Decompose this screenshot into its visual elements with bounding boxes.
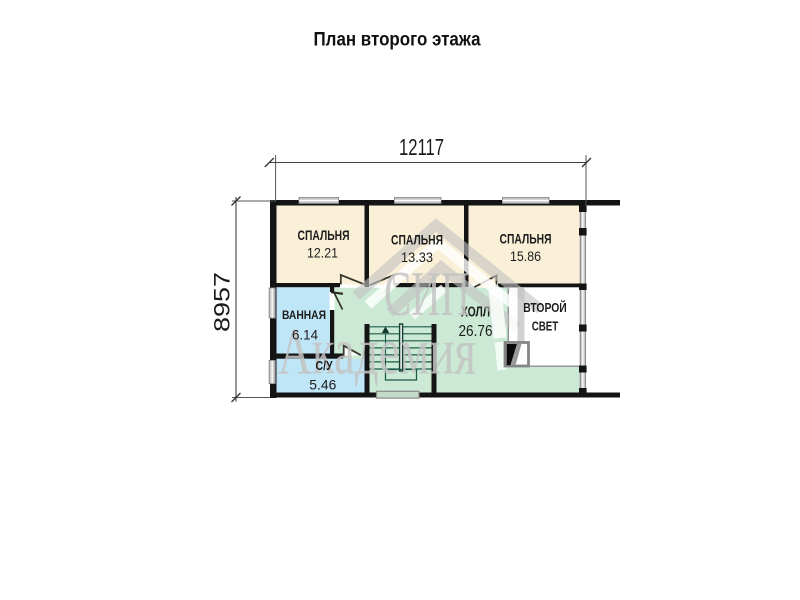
svg-text:5.46: 5.46 <box>309 377 336 393</box>
svg-text:15.86: 15.86 <box>510 248 541 264</box>
svg-text:12.21: 12.21 <box>307 245 338 261</box>
svg-text:СПАЛЬНЯ: СПАЛЬНЯ <box>391 232 443 248</box>
svg-text:СВЕТ: СВЕТ <box>532 319 559 334</box>
svg-text:ВТОРОЙ: ВТОРОЙ <box>523 300 567 315</box>
svg-text:ВАННАЯ: ВАННАЯ <box>282 310 326 322</box>
svg-text:6.14: 6.14 <box>292 327 318 343</box>
svg-text:С/У: С/У <box>316 358 334 373</box>
svg-text:8957: 8957 <box>210 272 235 332</box>
svg-text:СПАЛЬНЯ: СПАЛЬНЯ <box>500 231 552 247</box>
svg-text:План второго этажа: План второго этажа <box>314 29 481 51</box>
svg-text:СПАЛЬНЯ: СПАЛЬНЯ <box>298 227 350 243</box>
svg-text:12117: 12117 <box>399 134 444 160</box>
svg-text:13.33: 13.33 <box>401 249 433 265</box>
